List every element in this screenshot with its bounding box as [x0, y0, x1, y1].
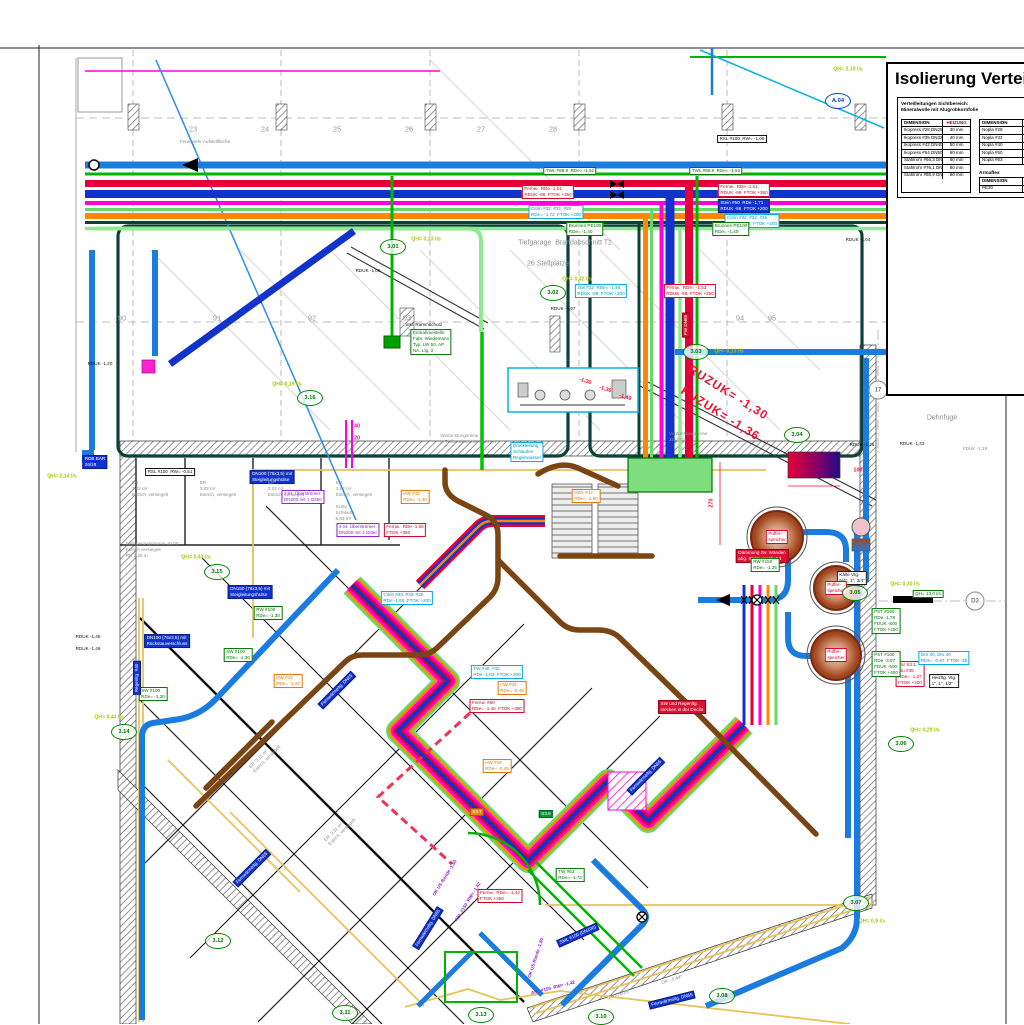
machine-detail-inset [508, 368, 638, 412]
table-header-row: DIMENSION [980, 120, 1024, 127]
main-bundle-horizontal [85, 165, 886, 229]
table-row: Ikopress #28 DN2530 mm [902, 126, 970, 134]
insulation-table-armaflex: DIMENSIONPE30DN [979, 177, 1024, 193]
insulation-table-heizung: DIMENSIONHEIZUNGIkopress #28 DN2530 mmIk… [901, 119, 971, 193]
rotated-walls [140, 506, 660, 1024]
table-row: Ikopress #35 DN3240 mm [902, 134, 970, 142]
drawing-sheet: RSL #100 RW= -1,05RSL #100 RW= -0,51TWL … [0, 0, 1024, 1024]
table-row: Nopla #50DN [980, 149, 1024, 157]
plan-canvas [0, 0, 1024, 1024]
table-row: Stahlrohr #76,1 DN6580 mm [902, 164, 970, 172]
riser-bundle [741, 585, 779, 725]
green-loops [392, 176, 642, 1002]
table-row: Nopla #32DN [980, 134, 1024, 142]
compartment-outline [118, 226, 862, 456]
table-row: Stahlrohr #88,9 DN8090 mm [902, 172, 970, 180]
ahu-units [552, 484, 638, 558]
table-row: Ikopress #42 DN4050 mm [902, 142, 970, 150]
storage-rooms [120, 458, 400, 545]
table-row: PE30DN [980, 185, 1024, 193]
armaflex-label: Armaflex [979, 171, 1024, 176]
navy-branch [142, 231, 354, 373]
table-row: Nopla #63DN [980, 157, 1024, 165]
table-header-row: DIMENSIONHEIZUNG [902, 120, 970, 127]
sheet-title: Isolierung Verteilung [888, 64, 1024, 91]
table-header-row: DIMENSION [980, 178, 1024, 185]
insulation-legend: Verteilleitungen Sichtbereich: Mineralwo… [897, 97, 1024, 198]
magenta-hatch-area [608, 772, 646, 810]
central-bundle [352, 521, 744, 861]
table-row: Stahlrohr #66,3 DN5060 mm [902, 157, 970, 165]
table-row: Ikopress #54 DN5060 mm [902, 149, 970, 157]
valve-symbols [82, 158, 947, 922]
main-bundle-vertical [628, 176, 720, 545]
title-block: Isolierung Verteilung Verteilleitungen S… [886, 62, 1024, 396]
insulation-table-nopla: DIMENSIONNopla #28DNNopla #32DNNopla #40… [979, 119, 1024, 165]
legend-note-2: Mineralwolle mit Alugrobkornfolie [901, 108, 1024, 114]
tap-point [384, 336, 400, 348]
table-row: Nopla #28DN [980, 126, 1024, 134]
gradient-box [788, 452, 840, 486]
parking-lines [150, 60, 820, 430]
table-row: Nopla #40DN [980, 142, 1024, 150]
